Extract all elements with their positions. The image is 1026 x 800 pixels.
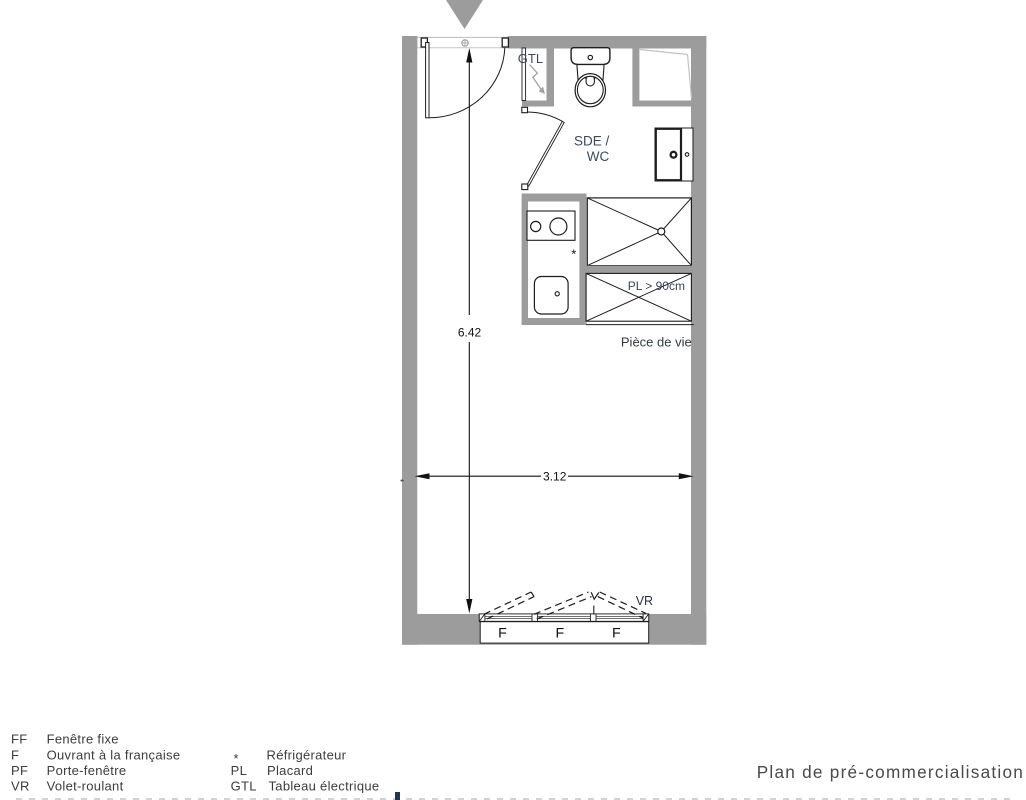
svg-text:F: F (498, 625, 507, 641)
svg-text:GTL: GTL (231, 778, 257, 793)
svg-text:Placard: Placard (267, 763, 313, 778)
svg-text:Porte-fenêtre: Porte-fenêtre (47, 763, 127, 778)
svg-text:Ouvrant à la française: Ouvrant à la française (47, 747, 181, 762)
svg-text:PL > 90cm: PL > 90cm (628, 279, 685, 293)
svg-text:Tableau électrique: Tableau électrique (269, 778, 380, 793)
svg-text:WC: WC (587, 149, 610, 164)
svg-text:3.12: 3.12 (543, 470, 567, 484)
svg-text:Plan de pré-commercialisation: Plan de pré-commercialisation (757, 762, 1024, 782)
svg-text:Volet-roulant: Volet-roulant (47, 778, 124, 793)
svg-text:PL: PL (231, 763, 248, 778)
svg-text:Fenêtre fixe: Fenêtre fixe (47, 732, 119, 747)
svg-text:VR: VR (11, 778, 30, 793)
svg-text:FF: FF (11, 732, 27, 747)
svg-text:PF: PF (11, 763, 28, 778)
svg-text:6.42: 6.42 (458, 326, 482, 340)
svg-text:F: F (11, 747, 19, 762)
svg-text:F: F (555, 625, 564, 641)
svg-text:Pièce de vie: Pièce de vie (621, 335, 692, 350)
svg-text:F: F (612, 625, 621, 641)
svg-text:VR: VR (636, 594, 653, 608)
svg-text:SDE /: SDE / (574, 133, 610, 148)
svg-text:*: * (571, 246, 576, 261)
svg-text:GTL: GTL (518, 51, 543, 66)
svg-text:Réfrigérateur: Réfrigérateur (267, 747, 347, 762)
